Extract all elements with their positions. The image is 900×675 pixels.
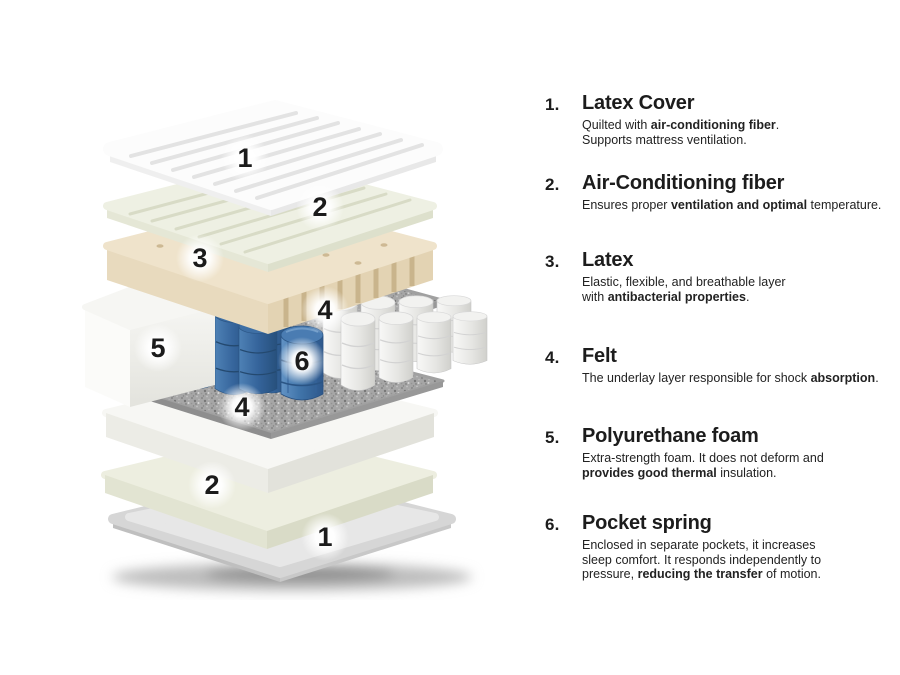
legend-item-description: Elastic, flexible, and breathable layer … [582,275,897,304]
legend-item-number: 5. [545,425,575,448]
legend-item-title: Polyurethane foam [582,425,897,447]
legend-item-number: 3. [545,249,575,272]
legend-item-description: Ensures proper ventilation and optimal t… [582,198,897,213]
legend-item-air-conditioning-fiber: 2. Air-Conditioning fiber Ensures proper… [545,172,897,213]
legend-item-polyurethane-foam: 5. Polyurethane foam Extra-strength foam… [545,425,897,480]
legend-item-number: 4. [545,345,575,368]
legend-item-latex-cover: 1. Latex Cover Quilted with air-conditio… [545,92,897,147]
legend-item-title: Pocket spring [582,512,897,534]
legend-item-latex: 3. Latex Elastic, flexible, and breathab… [545,249,897,304]
legend-item-description: Extra-strength foam. It does not deform … [582,451,897,480]
legend-item-description: Enclosed in separate pockets, it increas… [582,538,897,582]
legend-item-title: Latex Cover [582,92,897,114]
legend-item-felt: 4. Felt The underlay layer responsible f… [545,345,897,386]
legend-item-description: The underlay layer responsible for shock… [582,371,897,386]
legend-item-number: 6. [545,512,575,535]
legend: 1. Latex Cover Quilted with air-conditio… [0,0,900,675]
legend-item-title: Latex [582,249,897,271]
legend-item-title: Felt [582,345,897,367]
legend-item-number: 2. [545,172,575,195]
legend-item-title: Air-Conditioning fiber [582,172,897,194]
legend-item-description: Quilted with air-conditioning fiber. Sup… [582,118,897,147]
page: { "page": { "background": "#ffffff" }, "… [0,0,900,675]
legend-item-number: 1. [545,92,575,115]
legend-item-pocket-spring: 6. Pocket spring Enclosed in separate po… [545,512,897,582]
